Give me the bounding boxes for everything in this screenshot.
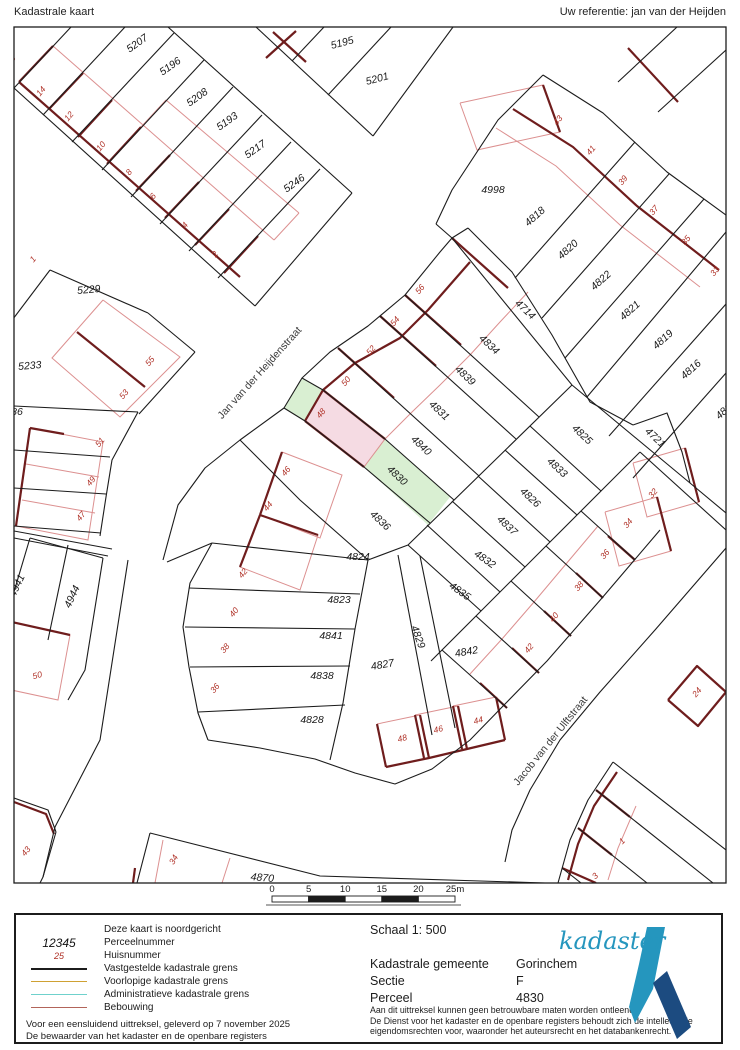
parcel-boundary	[14, 488, 106, 494]
parcel-label-4824: 4824	[346, 551, 370, 563]
house-number-44: 44	[261, 499, 275, 513]
parcel-boundary	[148, 313, 195, 352]
legend-item-deze-kaart-is-noordgericht: Deze kaart is noordgericht	[24, 923, 354, 936]
parcel-boundary	[14, 526, 101, 533]
building-front-line	[458, 706, 467, 749]
parcel-boundary	[587, 232, 726, 397]
building-front-line	[452, 238, 508, 288]
legend-symbol: 12345	[24, 936, 94, 950]
parcel-boundary	[189, 142, 291, 251]
parcel-label-4828: 4828	[300, 714, 324, 726]
house-number-50: 50	[31, 669, 43, 681]
house-number-36: 36	[208, 681, 222, 695]
parcel-boundary	[14, 406, 138, 412]
parcel-label-5208: 5208	[184, 86, 210, 109]
parcel-label-5201: 5201	[364, 70, 390, 88]
parcel-label-4941: 4941	[7, 573, 28, 599]
building-front-line	[657, 497, 671, 551]
parcel-boundary	[436, 75, 543, 224]
parcel-label-4823: 4823	[327, 594, 351, 606]
legend-label: Perceelnummer	[94, 937, 175, 948]
legend-symbol	[24, 994, 94, 995]
parcel-boundary	[292, 27, 324, 61]
parcel-boundary	[43, 832, 56, 877]
legend-box: Deze kaart is noordgericht12345Perceelnu…	[14, 913, 723, 1044]
parcel-boundary	[442, 650, 507, 708]
legend-label: Huisnummer	[94, 950, 161, 961]
parcel-boundary	[565, 199, 704, 358]
building-outline	[453, 697, 496, 706]
parcel-label-4820: 4820	[555, 237, 581, 262]
parcel-boundary	[468, 228, 633, 425]
footer-line-1: Voor een eensluidend uittreksel, gelever…	[26, 1019, 290, 1031]
parcel-label-4842: 4842	[454, 644, 479, 660]
legend-label: Bebouwing	[94, 1002, 153, 1013]
building-front-line	[568, 772, 617, 880]
house-number-3: 3	[590, 870, 601, 881]
building-front-line	[685, 448, 699, 502]
legend-item-voorlopige-kadastrale-grens: Voorlopige kadastrale grens	[24, 975, 354, 988]
house-number-40: 40	[227, 605, 241, 619]
scale-tick-15: 15	[377, 884, 388, 895]
parcel-label-5207: 5207	[124, 31, 151, 55]
house-number-51: 51	[93, 435, 107, 449]
legend-symbol	[24, 968, 94, 970]
scale-tick-5: 5	[306, 884, 311, 895]
parcel-label-5229: 5229	[77, 283, 101, 297]
building-front-line	[386, 740, 505, 767]
legend-label: Administratieve kadastrale grens	[94, 989, 249, 1000]
parcel-boundary	[190, 666, 350, 667]
parcel-boundary	[14, 798, 56, 832]
building-front-line	[12, 622, 70, 635]
house-number-33: 33	[708, 264, 722, 278]
street-label-Jacob van der Ulftstraat: Jacob van der Ulftstraat	[511, 694, 590, 788]
house-number-42: 42	[522, 641, 536, 655]
parcel-label-5217: 5217	[242, 137, 269, 161]
house-number-39: 39	[616, 173, 630, 187]
parcel-boundary	[43, 27, 125, 115]
cadastral-map: 5207519652085193521752465195520152295233…	[2, 27, 739, 885]
parcel-boundary	[613, 762, 726, 850]
building-front-line	[30, 428, 64, 434]
house-number-16: 16	[4, 53, 18, 67]
scale-bar: 0510152025m	[266, 884, 464, 905]
house-number-44: 44	[472, 714, 484, 726]
parcel-label-5246: 5246	[281, 172, 307, 195]
house-number-38: 38	[218, 641, 232, 655]
parcel-boundary	[14, 531, 112, 549]
house-number-41: 41	[584, 143, 598, 157]
parcel-boundary	[436, 224, 452, 238]
building-front-line	[224, 236, 258, 273]
parcel-boundary	[150, 833, 545, 883]
parcel-label-4841: 4841	[319, 630, 342, 642]
building-outline	[240, 515, 318, 590]
parcel-label-4944: 4944	[62, 583, 83, 609]
parcel-label-4818: 4818	[522, 204, 548, 229]
legend-item-administratieve-kadastrale-grens: Administratieve kadastrale grens	[24, 988, 354, 1001]
legend-label: Voorlopige kadastrale grens	[94, 976, 228, 987]
parcel-boundary	[558, 762, 613, 883]
scale-tick-10: 10	[340, 884, 351, 895]
building-outline	[460, 85, 560, 150]
parcel-boundary	[183, 543, 212, 740]
scale-tick-25m: 25m	[446, 884, 465, 895]
parcel-label-4836: 4836	[367, 508, 392, 533]
scale-tick-0: 0	[269, 884, 274, 895]
house-number-42: 42	[236, 566, 250, 580]
building-front-line	[133, 868, 135, 883]
parcel-label-4816: 4816	[678, 357, 704, 382]
info-value: F	[516, 974, 524, 991]
parcel-boundary	[14, 450, 110, 457]
building-outline	[155, 840, 163, 883]
parcel-boundary	[368, 545, 408, 560]
parcel-boundary	[596, 790, 713, 883]
house-number-52: 52	[364, 343, 378, 357]
footer-line-2: De bewaarder van het kadaster en de open…	[26, 1031, 290, 1043]
map-svg: 5207519652085193521752465195520152295233…	[0, 0, 740, 1050]
legend-item-huisnummer: 25Huisnummer	[24, 949, 354, 962]
parcel-boundary	[578, 828, 647, 883]
legend-item-bebouwing: Bebouwing	[24, 1001, 354, 1014]
parcel-boundary	[167, 543, 212, 562]
parcel-boundary	[505, 548, 726, 862]
parcel-boundary	[14, 27, 71, 88]
parcel-label-4714: 4714	[512, 297, 537, 322]
building-front-line	[415, 715, 424, 758]
parcel-boundary	[618, 27, 677, 82]
parcel-label-4819: 4819	[650, 327, 676, 352]
building-outline	[52, 300, 180, 417]
building-outline	[496, 128, 700, 287]
legend-item-perceelnummer: 12345Perceelnummer	[24, 936, 354, 949]
parcel-label-4822: 4822	[588, 268, 614, 293]
building-front-line	[377, 724, 386, 767]
parcel-label-5195: 5195	[329, 34, 355, 52]
house-number-34: 34	[621, 516, 635, 530]
building-outline	[377, 715, 420, 724]
parcel-boundary	[452, 238, 572, 385]
building-outline	[470, 526, 598, 674]
parcel-boundary	[198, 705, 345, 712]
parcel-label-4826: 4826	[517, 485, 542, 510]
parcel-label-4831: 4831	[426, 398, 451, 423]
building-outline	[222, 858, 230, 883]
parcel-boundary	[240, 440, 368, 560]
parcel-boundary	[131, 87, 233, 197]
parcel-boundary	[137, 833, 150, 883]
building-outline	[141, 100, 166, 127]
building-front-line	[260, 515, 318, 535]
house-number-56: 56	[413, 282, 427, 296]
house-number-4: 4	[179, 220, 190, 230]
kadaster-logo: kadaster	[559, 919, 709, 1041]
legend-label: Deze kaart is noordgericht	[94, 924, 221, 935]
parcel-boundary	[10, 270, 50, 323]
parcel-label-4829: 4829	[408, 624, 427, 650]
parcel-boundary	[168, 27, 352, 193]
house-number-46: 46	[432, 723, 444, 735]
building-front-line	[77, 332, 145, 387]
kadaster-logo-text: kadaster	[559, 927, 665, 955]
parcel-boundary	[48, 545, 68, 640]
building-front-line	[240, 515, 260, 567]
parcel-boundary	[68, 558, 103, 700]
scale-bar-segment	[345, 896, 382, 902]
house-number-40: 40	[547, 610, 561, 624]
building-outline	[260, 452, 342, 538]
building-front-line	[19, 82, 240, 277]
legend-symbol	[24, 1007, 94, 1008]
legend-rows: Deze kaart is noordgericht12345Perceelnu…	[24, 923, 354, 1014]
parcel-label-5233: 5233	[18, 359, 42, 373]
building-outline	[274, 213, 299, 240]
building-front-line	[16, 428, 30, 526]
parcel-label-4837: 4837	[494, 513, 520, 538]
scale-tick-20: 20	[413, 884, 424, 895]
house-number-55: 55	[143, 354, 157, 368]
parcel-boundary	[256, 27, 373, 136]
parcel-boundary	[658, 50, 726, 112]
parcel-label-4821: 4821	[617, 298, 642, 323]
house-number-43: 43	[19, 844, 33, 858]
parcel-label-5196: 5196	[157, 55, 183, 78]
house-number-35: 35	[679, 233, 693, 247]
parcel-boundary	[185, 627, 355, 629]
building-front-line	[78, 100, 112, 137]
parcel-boundary	[102, 60, 204, 170]
house-number-1: 1	[617, 835, 628, 846]
parcel-boundary	[100, 412, 138, 536]
parcel-boundary	[633, 373, 726, 478]
parcel-label-4832: 4832	[472, 548, 498, 571]
scale-bar-segment	[418, 896, 455, 902]
house-number-53: 53	[117, 387, 131, 401]
house-number-24: 24	[689, 685, 704, 700]
building-front-line	[14, 802, 54, 834]
scale-bar-segment	[272, 896, 309, 902]
parcel-label-4838: 4838	[310, 670, 334, 682]
legend-label: Vastgestelde kadastrale grens	[94, 963, 238, 974]
house-number-6: 6	[147, 191, 158, 201]
building-front-line	[628, 48, 678, 102]
logo-slab-shape	[653, 971, 691, 1039]
parcel-label-5193: 5193	[214, 110, 240, 133]
parcel-boundary	[72, 33, 174, 142]
scale-bar-segment	[382, 896, 419, 902]
parcel-label-4998: 4998	[481, 184, 505, 196]
parcel-boundary	[218, 169, 320, 278]
info-label: Kadastrale gemeente	[370, 957, 516, 974]
parcel-boundary	[408, 545, 481, 611]
legend-footer: Voor een eensluidend uittreksel, gelever…	[26, 1019, 290, 1043]
parcel-boundary	[330, 560, 368, 760]
page: Kadastrale kaart Uw referentie: jan van …	[0, 0, 740, 1050]
legend-item-vastgestelde-kadastrale-grens: Vastgestelde kadastrale grens	[24, 962, 354, 975]
parcel-boundary	[255, 193, 352, 306]
legend-symbol: 25	[24, 951, 94, 961]
house-number-34: 34	[167, 853, 181, 866]
parcel-label-4827: 4827	[370, 657, 396, 673]
building-outline	[22, 500, 95, 513]
legend-symbol	[24, 981, 94, 982]
parcel-label-86: 86	[11, 406, 23, 418]
house-number-36: 36	[598, 547, 612, 561]
building-front-line	[420, 715, 429, 758]
parcel-boundary	[40, 560, 128, 883]
parcel-boundary	[609, 304, 726, 436]
parcel-boundary	[160, 115, 262, 224]
scale-bar-segment	[309, 896, 346, 902]
house-number-46: 46	[279, 464, 293, 478]
parcel-boundary	[212, 543, 368, 560]
parcel-label-4840: 4840	[408, 433, 433, 458]
house-number-1: 1	[27, 254, 38, 264]
info-label: Sectie	[370, 974, 516, 991]
parcel-boundary	[542, 174, 669, 318]
parcel-label-4825: 4825	[569, 422, 594, 447]
parcel-boundary	[511, 581, 571, 636]
building-front-line	[266, 31, 296, 58]
building-outline	[364, 292, 528, 467]
house-number-48: 48	[396, 732, 408, 744]
parcel-label-4834: 4834	[476, 332, 501, 357]
parcel-boundary	[452, 228, 468, 238]
